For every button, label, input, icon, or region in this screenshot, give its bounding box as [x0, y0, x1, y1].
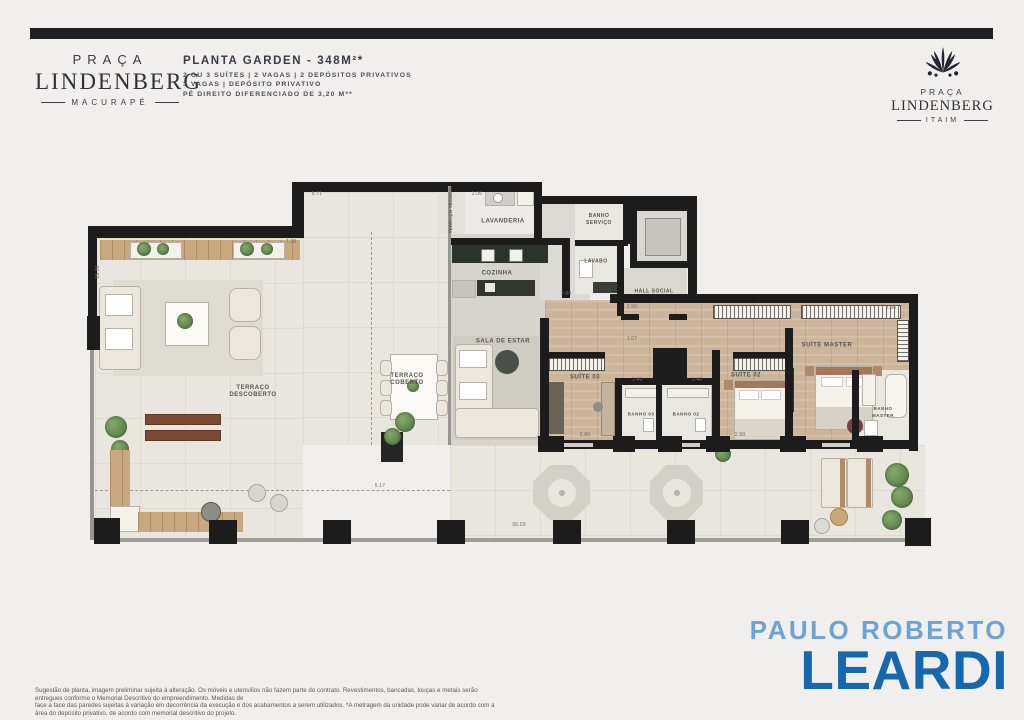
headboard [735, 381, 785, 388]
spec-line-2: 3 VAGAS | DEPÓSITO PRIVATIVO [183, 80, 412, 90]
room-label-banho-master: BANHO MASTER [866, 405, 900, 419]
column [706, 436, 730, 452]
glass-facade [448, 232, 451, 445]
room-label-terraco-descoberto: TERRAÇO DESCOBERTO [222, 385, 284, 399]
dimension-label: 2.06 [472, 191, 483, 197]
gourmet-counter-vertical [110, 450, 130, 508]
brand-name: LEARDI [750, 644, 1008, 696]
desk [601, 382, 615, 436]
logo-right-top: PRAÇA [880, 87, 1005, 97]
logo-right-sub: ITAIM [880, 117, 1005, 124]
plant [261, 243, 273, 255]
closet [733, 358, 790, 371]
sun-lounger [821, 458, 847, 508]
column [87, 316, 100, 350]
dining-chair [380, 400, 392, 416]
logo-lindenberg-macurape: PRAÇA LINDENBERG MACURAPÉ [35, 52, 185, 107]
closet [548, 358, 605, 371]
room-label-banho-servico: BANHO SERVIÇO [582, 213, 616, 227]
wall-segment [669, 314, 687, 320]
room-label-banho-02: BANHO 02 [672, 411, 700, 418]
toilet [864, 420, 878, 436]
elevator-shaft [630, 204, 694, 268]
wall-segment [621, 314, 639, 320]
bathroom-sink [862, 374, 876, 406]
wall-segment [656, 385, 662, 443]
sofa-cushion [459, 350, 487, 368]
logo-right-sub-text: ITAIM [926, 117, 959, 124]
wall-segment [540, 318, 549, 448]
wall-segment [450, 238, 562, 245]
room-label-suite-02: SUÍTE 02 [731, 373, 761, 380]
column [94, 518, 120, 544]
grill [201, 502, 221, 522]
dimension-label: 2.90 [735, 432, 746, 438]
plant [157, 243, 169, 255]
wall-segment [615, 385, 622, 443]
side-table [814, 518, 830, 534]
logo-lindenberg-itaim: PRAÇA LINDENBERG ITAIM [880, 44, 1005, 124]
disclaimer-line-1: Sugestão de planta, imagem preliminar su… [35, 687, 505, 702]
rule-right [155, 102, 179, 103]
room-label-suite-03: SUÍTE 03 [570, 375, 600, 382]
fridge [452, 280, 476, 298]
wall-segment [712, 350, 720, 443]
bathroom-sink [667, 388, 709, 398]
disclaimer-line-2: face a face das paredes sujeitas à varia… [35, 702, 505, 717]
dimension-label: 15.36 [95, 265, 101, 279]
plant [885, 463, 909, 487]
wall-segment [88, 226, 304, 238]
dining-chair [436, 360, 448, 376]
plant [137, 242, 151, 256]
wall-segment [852, 370, 859, 443]
column [538, 436, 564, 452]
bed-suite-02 [734, 380, 786, 440]
wall-segment [785, 328, 793, 443]
plan-title: PLANTA GARDEN - 348M²* [183, 55, 412, 67]
pillow [761, 390, 781, 400]
column [437, 520, 465, 544]
cooktop [481, 249, 495, 262]
logo-left-sub-text: MACURAPÉ [71, 98, 148, 107]
logo-right-main: LINDENBERG [880, 98, 1005, 115]
dimension-label: 1.40 [692, 377, 703, 383]
pillow [821, 377, 843, 387]
wall-segment [733, 352, 788, 358]
top-bar [30, 28, 993, 39]
palm-emblem-icon [922, 44, 964, 80]
side-table [495, 350, 519, 374]
dimension-label: 5.71 [312, 191, 323, 197]
sofa-cushion [459, 382, 487, 400]
dimension-label: 36.03 [512, 522, 526, 528]
room-label-suite-master: SUÍTE MASTER [802, 343, 853, 350]
sun-lounger [847, 458, 873, 508]
spec-line-3: PÉ DIREITO DIFERENCIADO DE 3,20 M** [183, 90, 412, 100]
covered-terrace-dashed-line [371, 232, 372, 445]
dimension-label: 3.36 [886, 305, 897, 311]
dining-chair [436, 400, 448, 416]
island-sink [485, 283, 495, 292]
column [658, 436, 682, 452]
rule-left [41, 102, 65, 103]
wall-segment [909, 294, 918, 451]
toilet [643, 418, 654, 432]
dimension-label: 5.17 [375, 483, 386, 489]
wall-segment [542, 196, 688, 204]
wall-segment [623, 202, 630, 244]
wall-segment [545, 352, 605, 358]
living-sofa-chaise [455, 408, 539, 438]
lounger-wood [866, 459, 871, 507]
shaft-block [653, 348, 687, 378]
stool [270, 494, 288, 512]
wall-segment [534, 186, 542, 238]
dimension-label: 1.07 [627, 336, 638, 342]
column [780, 436, 806, 452]
armchair [229, 288, 261, 322]
floor-plan: TERRAÇO DESCOBERTO TERRAÇO COBERTO TERRA… [85, 168, 935, 570]
bench [145, 414, 221, 425]
plant [240, 242, 254, 256]
dimension-label: 1.90 [627, 304, 638, 310]
plant [384, 428, 401, 445]
leardi-brand: PAULO ROBERTO LEARDI [750, 616, 1008, 696]
room-label-lavabo: LAVABO [584, 259, 607, 266]
disclaimer: Sugestão de planta, imagem preliminar su… [35, 687, 505, 717]
lounger-center [674, 490, 680, 496]
round-lounger [650, 465, 703, 520]
logo-left-top: PRAÇA [35, 52, 185, 67]
wall-segment [617, 244, 624, 316]
window [822, 443, 850, 447]
column [905, 518, 931, 546]
rule-right [964, 120, 988, 121]
column [323, 520, 351, 544]
stool [248, 484, 266, 502]
plan-title-block: PLANTA GARDEN - 348M²* 2 OU 3 SUÍTES | 2… [183, 55, 412, 99]
wall-segment [562, 238, 570, 298]
dimension-label: 2.80 [580, 432, 591, 438]
armchair [229, 326, 261, 360]
plan-specs: 2 OU 3 SUÍTES | 2 VAGAS | 2 DEPÓSITOS PR… [183, 71, 412, 100]
kitchen-counter [452, 245, 548, 263]
kitchen-sink [509, 249, 523, 262]
bathroom-sink [625, 388, 657, 398]
dimension-label: 1.49 [632, 377, 643, 383]
room-label-terraco-tecnico: TERRAÇO TÉCNICO [447, 187, 457, 234]
lounger-wood [840, 459, 845, 507]
toilet [695, 418, 706, 432]
plant [882, 510, 902, 530]
plant [891, 486, 913, 508]
table-plant [177, 313, 193, 329]
logo-left-sub: MACURAPÉ [35, 98, 185, 107]
lounger-center [559, 490, 565, 496]
wall-segment [688, 196, 697, 302]
dimension-label: 2.94 [561, 291, 572, 297]
spec-line-1: 2 OU 3 SUÍTES | 2 VAGAS | 2 DEPÓSITOS PR… [183, 71, 412, 81]
column [613, 436, 635, 452]
sofa-cushion [105, 328, 133, 350]
column [209, 520, 237, 544]
room-label-hall-social: HALL SOCIAL [634, 289, 673, 296]
closet [713, 305, 791, 319]
desk-chair [593, 402, 603, 412]
plant [395, 412, 415, 432]
room-label-banho-03: BANHO 03 [627, 411, 655, 418]
column [781, 520, 809, 544]
room-label-cozinha: COZINHA [482, 271, 513, 278]
wardrobe [548, 382, 564, 434]
sofa-cushion [105, 294, 133, 316]
nightstand [724, 380, 733, 390]
wall-segment [292, 182, 542, 192]
dining-chair [436, 380, 448, 396]
closet [897, 320, 909, 362]
glass-railing [90, 348, 94, 540]
room-label-lavanderia: LAVANDERIA [481, 219, 524, 226]
nightstand [805, 366, 814, 376]
rule-left [897, 120, 921, 121]
room-label-terraco-coberto: TERRAÇO COBERTO [383, 373, 431, 387]
terrace-dashed-line [95, 490, 450, 491]
bench [145, 430, 221, 441]
column [857, 436, 883, 452]
plant [105, 416, 127, 438]
lavabo-vanity [593, 282, 619, 293]
flyer-page: PRAÇA LINDENBERG MACURAPÉ PLANTA GARDEN … [0, 0, 1024, 720]
side-table [830, 508, 848, 526]
column [667, 520, 695, 544]
room-label-sala-de-estar: SALA DE ESTAR [476, 339, 530, 346]
washing-machine [517, 190, 534, 206]
dimension-label: 7.28 [286, 239, 297, 245]
laundry-basin [493, 193, 503, 203]
logo-left-main: LINDENBERG [35, 69, 185, 95]
column [553, 520, 581, 544]
elevator-cab [645, 218, 681, 256]
pillow [739, 390, 759, 400]
